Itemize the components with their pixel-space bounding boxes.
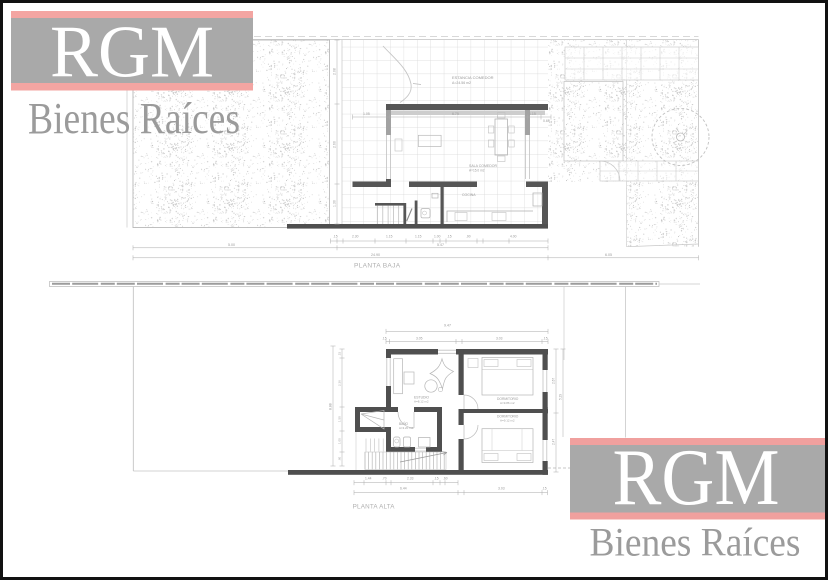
svg-text:SALA COMEDOR: SALA COMEDOR bbox=[469, 164, 497, 168]
svg-text:A=9.12 m2: A=9.12 m2 bbox=[500, 419, 515, 423]
svg-text:2.47: 2.47 bbox=[552, 439, 556, 445]
svg-text:1.00: 1.00 bbox=[434, 235, 441, 239]
svg-text:PLANTA ALTA: PLANTA ALTA bbox=[353, 503, 396, 510]
svg-text:3.03: 3.03 bbox=[496, 337, 503, 341]
svg-text:.15: .15 bbox=[338, 351, 342, 356]
svg-text:1.50: 1.50 bbox=[338, 416, 342, 422]
svg-text:2.33: 2.33 bbox=[407, 476, 414, 480]
svg-text:3.05: 3.05 bbox=[416, 337, 423, 341]
svg-text:.15: .15 bbox=[447, 235, 452, 239]
svg-text:1.30: 1.30 bbox=[333, 200, 337, 207]
svg-text:.15: .15 bbox=[543, 337, 548, 341]
svg-text:Bienes Raíces: Bienes Raíces bbox=[28, 94, 240, 143]
svg-text:9.47: 9.47 bbox=[444, 324, 451, 328]
svg-text:5.29: 5.29 bbox=[559, 394, 563, 400]
svg-text:8.88: 8.88 bbox=[329, 403, 333, 410]
svg-text:5.47: 5.47 bbox=[437, 243, 444, 247]
svg-text:RGM: RGM bbox=[50, 11, 214, 93]
svg-text:2.67: 2.67 bbox=[552, 378, 556, 384]
svg-text:3.03: 3.03 bbox=[498, 486, 505, 490]
svg-text:.60: .60 bbox=[443, 476, 448, 480]
svg-text:5.00: 5.00 bbox=[228, 243, 235, 247]
svg-text:.60: .60 bbox=[338, 456, 342, 461]
svg-text:24.90: 24.90 bbox=[371, 253, 380, 257]
svg-text:6.05: 6.05 bbox=[605, 253, 612, 257]
svg-text:PLANTA BAJA: PLANTA BAJA bbox=[354, 262, 401, 269]
svg-text:2.36: 2.36 bbox=[338, 380, 342, 386]
svg-text:1.15: 1.15 bbox=[386, 235, 393, 239]
svg-text:1.15: 1.15 bbox=[529, 112, 536, 116]
svg-text:6.75: 6.75 bbox=[452, 112, 459, 116]
svg-text:RGM: RGM bbox=[613, 434, 780, 522]
svg-text:.70: .70 bbox=[382, 476, 387, 480]
svg-text:.15: .15 bbox=[333, 235, 338, 239]
svg-text:A=15.0 m2: A=15.0 m2 bbox=[469, 169, 485, 173]
svg-text:ESTANCIA COMEDOR: ESTANCIA COMEDOR bbox=[452, 75, 494, 80]
svg-text:0.60: 0.60 bbox=[543, 119, 550, 123]
svg-text:1.44: 1.44 bbox=[365, 476, 372, 480]
svg-text:.15: .15 bbox=[434, 476, 439, 480]
svg-text:1.15: 1.15 bbox=[415, 235, 422, 239]
svg-text:2.60: 2.60 bbox=[333, 141, 337, 148]
svg-text:2.30: 2.30 bbox=[352, 235, 359, 239]
svg-text:COCINA: COCINA bbox=[462, 193, 476, 197]
svg-text:A=3.20 m2: A=3.20 m2 bbox=[399, 426, 413, 430]
svg-text:2.08: 2.08 bbox=[333, 68, 337, 75]
svg-text:4.00: 4.00 bbox=[510, 235, 517, 239]
svg-text:A=9.86 m2: A=9.86 m2 bbox=[500, 401, 515, 405]
svg-text:.90: .90 bbox=[466, 235, 471, 239]
svg-text:A=24.56 m2: A=24.56 m2 bbox=[452, 81, 471, 85]
svg-text:6.44: 6.44 bbox=[400, 486, 407, 490]
svg-text:A=8.12 m2: A=8.12 m2 bbox=[414, 400, 429, 404]
svg-text:1.00: 1.00 bbox=[338, 438, 342, 444]
svg-text:.15: .15 bbox=[542, 486, 547, 490]
svg-text:1.05: 1.05 bbox=[363, 112, 370, 116]
svg-text:Bienes Raíces: Bienes Raíces bbox=[590, 519, 801, 564]
svg-text:.15: .15 bbox=[382, 337, 387, 341]
